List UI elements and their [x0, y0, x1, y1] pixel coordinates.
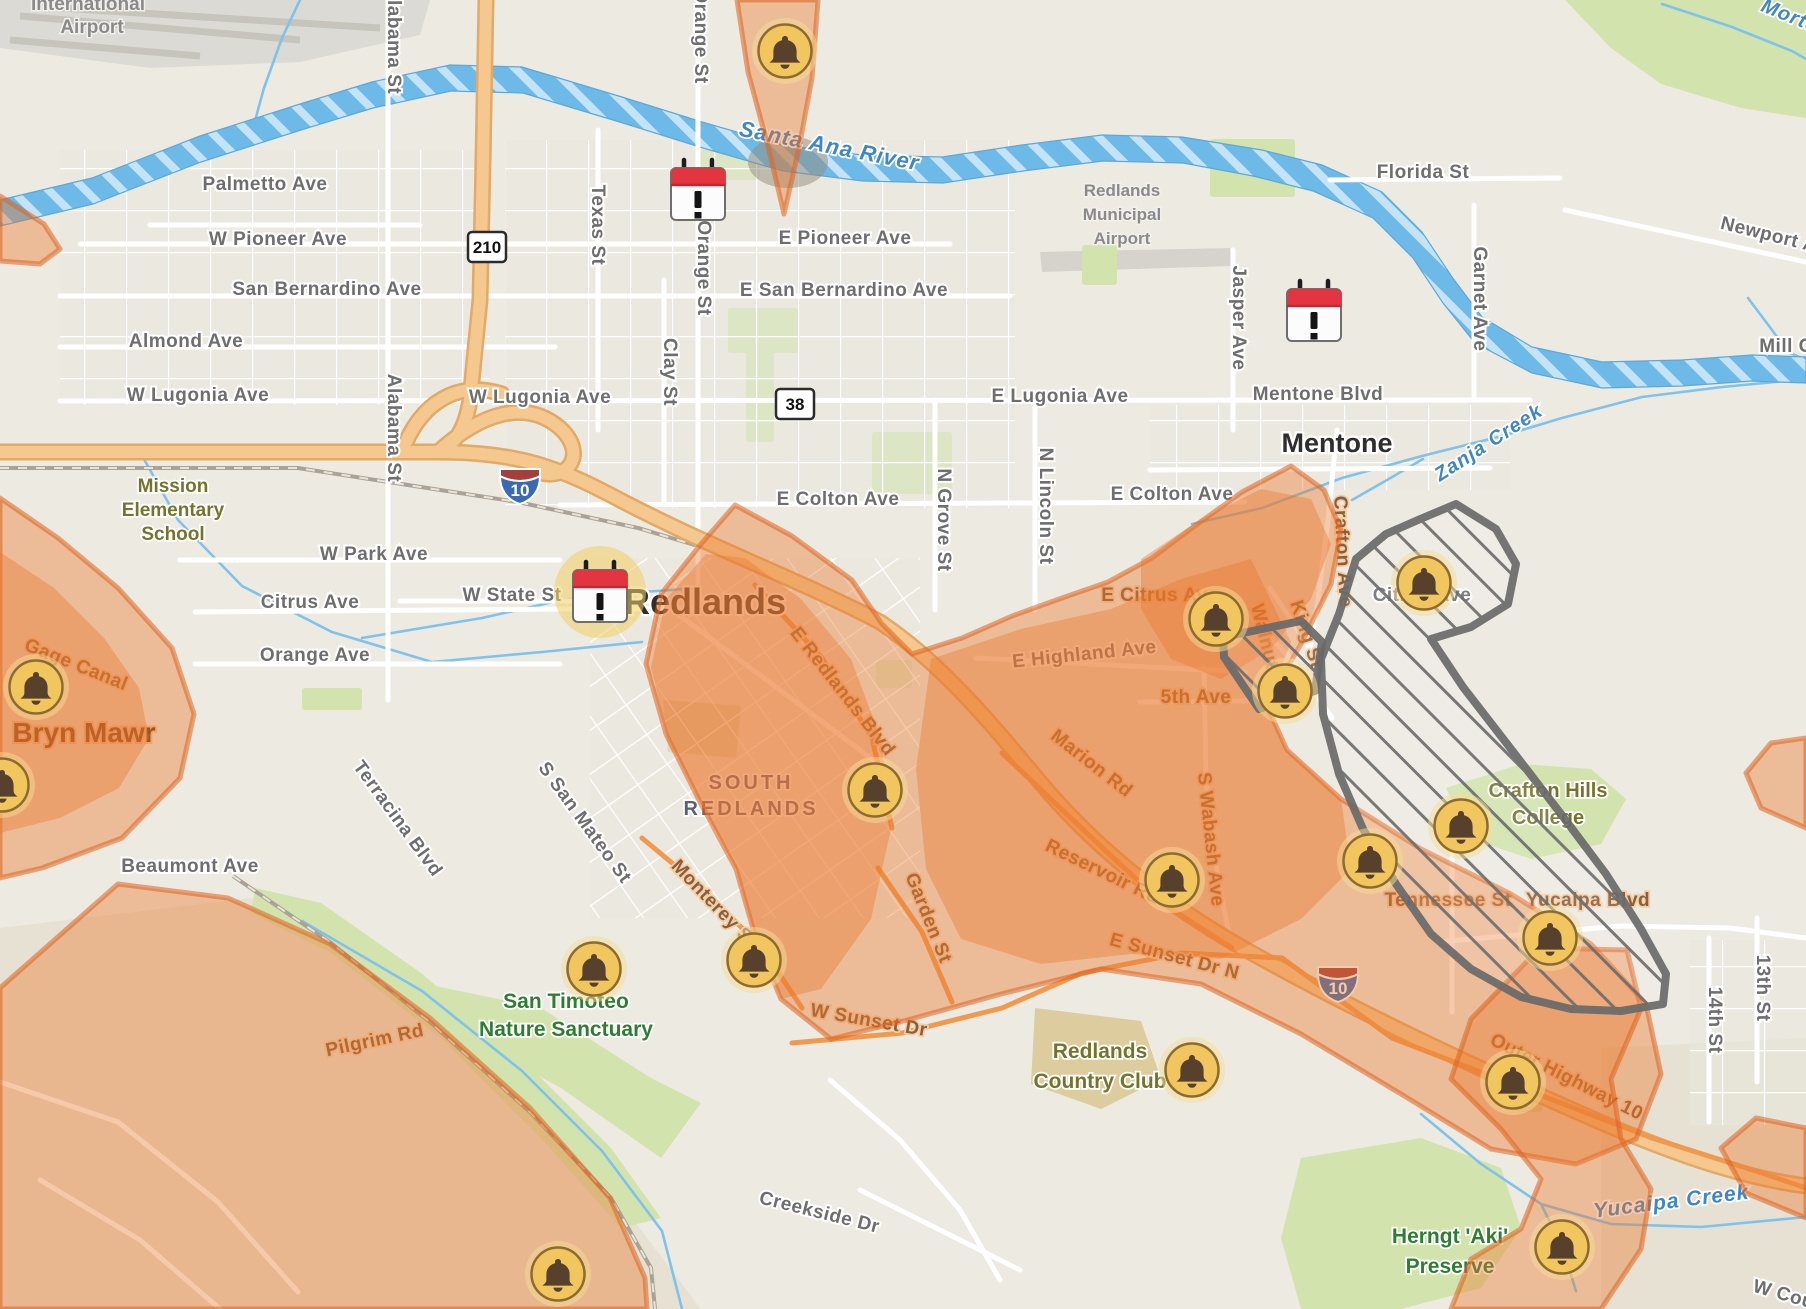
map-label: N Lincoln St: [1035, 448, 1056, 565]
map-label: Palmetto Ave: [203, 174, 328, 195]
map-label: Orange St: [690, 0, 711, 84]
map-label: Garnet Ave: [1469, 247, 1490, 352]
alert-bell-icon[interactable]: [561, 936, 627, 1002]
alert-bell-icon[interactable]: [1337, 828, 1403, 894]
route-210-shield: 210: [468, 232, 506, 262]
map-view: 210381010InternationalAirportPalmetto Av…: [0, 0, 1806, 1309]
alert-bell-icon[interactable]: [1391, 550, 1457, 616]
alert-bell-icon[interactable]: [842, 757, 908, 823]
map-label: Almond Ave: [129, 331, 243, 352]
alert-bell-icon[interactable]: [1517, 905, 1583, 971]
svg-text:38: 38: [786, 395, 805, 414]
alert-bell-icon[interactable]: [1252, 658, 1318, 724]
map-label: 13th St: [1752, 955, 1773, 1022]
map-label: W Park Ave: [320, 544, 428, 565]
map-label: Alabama St: [383, 0, 404, 94]
map-label: Texas St: [587, 185, 608, 266]
alert-bell-icon[interactable]: [1529, 1214, 1595, 1280]
map-label: Citrus Ave: [261, 592, 360, 613]
map-label: Nature Sanctuary: [479, 1018, 653, 1041]
map-label: Country Club: [1034, 1070, 1167, 1093]
map-label: Redlands: [1053, 1040, 1148, 1063]
calendar-alert-icon[interactable]: [554, 546, 646, 638]
park-area: [302, 688, 362, 710]
map-label: E Colton Ave: [1111, 484, 1234, 505]
map-canvas[interactable]: 210381010InternationalAirportPalmetto Av…: [0, 0, 1806, 1309]
alert-bell-icon[interactable]: [1480, 1049, 1546, 1115]
map-label: San Bernardino Ave: [232, 279, 421, 300]
alert-bell-icon[interactable]: [525, 1241, 591, 1307]
alert-bell-icon[interactable]: [3, 654, 69, 720]
map-label: Mentone Blvd: [1253, 384, 1384, 405]
svg-text:10: 10: [511, 481, 530, 500]
map-label: E Colton Ave: [777, 489, 900, 510]
map-label: W Lugonia Ave: [469, 387, 611, 408]
map-label: Clay St: [659, 338, 680, 406]
svg-text:210: 210: [473, 238, 501, 257]
map-label: Beaumont Ave: [121, 856, 259, 877]
map-label: Elementary: [122, 500, 225, 521]
calendar-alert-icon[interactable]: [1287, 281, 1341, 341]
map-label: Redlands: [1084, 181, 1161, 200]
map-label: Alabama St: [383, 374, 404, 483]
park-area: [1082, 245, 1117, 285]
map-label: Orange Ave: [260, 645, 370, 666]
map-label: School: [141, 524, 204, 545]
map-label: Airport: [1094, 229, 1151, 248]
route-38-shield: 38: [776, 389, 814, 419]
map-label: E San Bernardino Ave: [740, 280, 948, 301]
map-label: Florida St: [1377, 162, 1470, 183]
map-label: W Pioneer Ave: [209, 229, 347, 250]
alert-bell-icon[interactable]: [1183, 586, 1249, 652]
map-label: N Grove St: [933, 468, 954, 571]
alert-bell-icon[interactable]: [721, 927, 787, 993]
map-label: Mission: [138, 476, 209, 497]
calendar-alert-icon[interactable]: [671, 160, 725, 220]
map-label: E Lugonia Ave: [991, 386, 1128, 407]
map-label: E Pioneer Ave: [779, 228, 912, 249]
map-label: 14th St: [1704, 987, 1725, 1054]
alert-bell-icon[interactable]: [1139, 847, 1205, 913]
map-label: International: [31, 0, 145, 15]
map-label: Municipal: [1083, 205, 1161, 224]
map-label: W State St: [463, 585, 562, 606]
city-label: Mentone: [1282, 428, 1393, 458]
alert-bell-icon[interactable]: [1159, 1037, 1225, 1103]
map-label: W Lugonia Ave: [127, 385, 269, 406]
map-label: Jasper Ave: [1228, 266, 1249, 371]
map-label: Airport: [60, 17, 124, 38]
alert-bell-icon[interactable]: [1428, 793, 1494, 859]
map-label: Orange St: [693, 220, 714, 315]
map-label: Mill Cr: [1759, 336, 1806, 357]
alert-bell-icon[interactable]: [752, 18, 818, 84]
